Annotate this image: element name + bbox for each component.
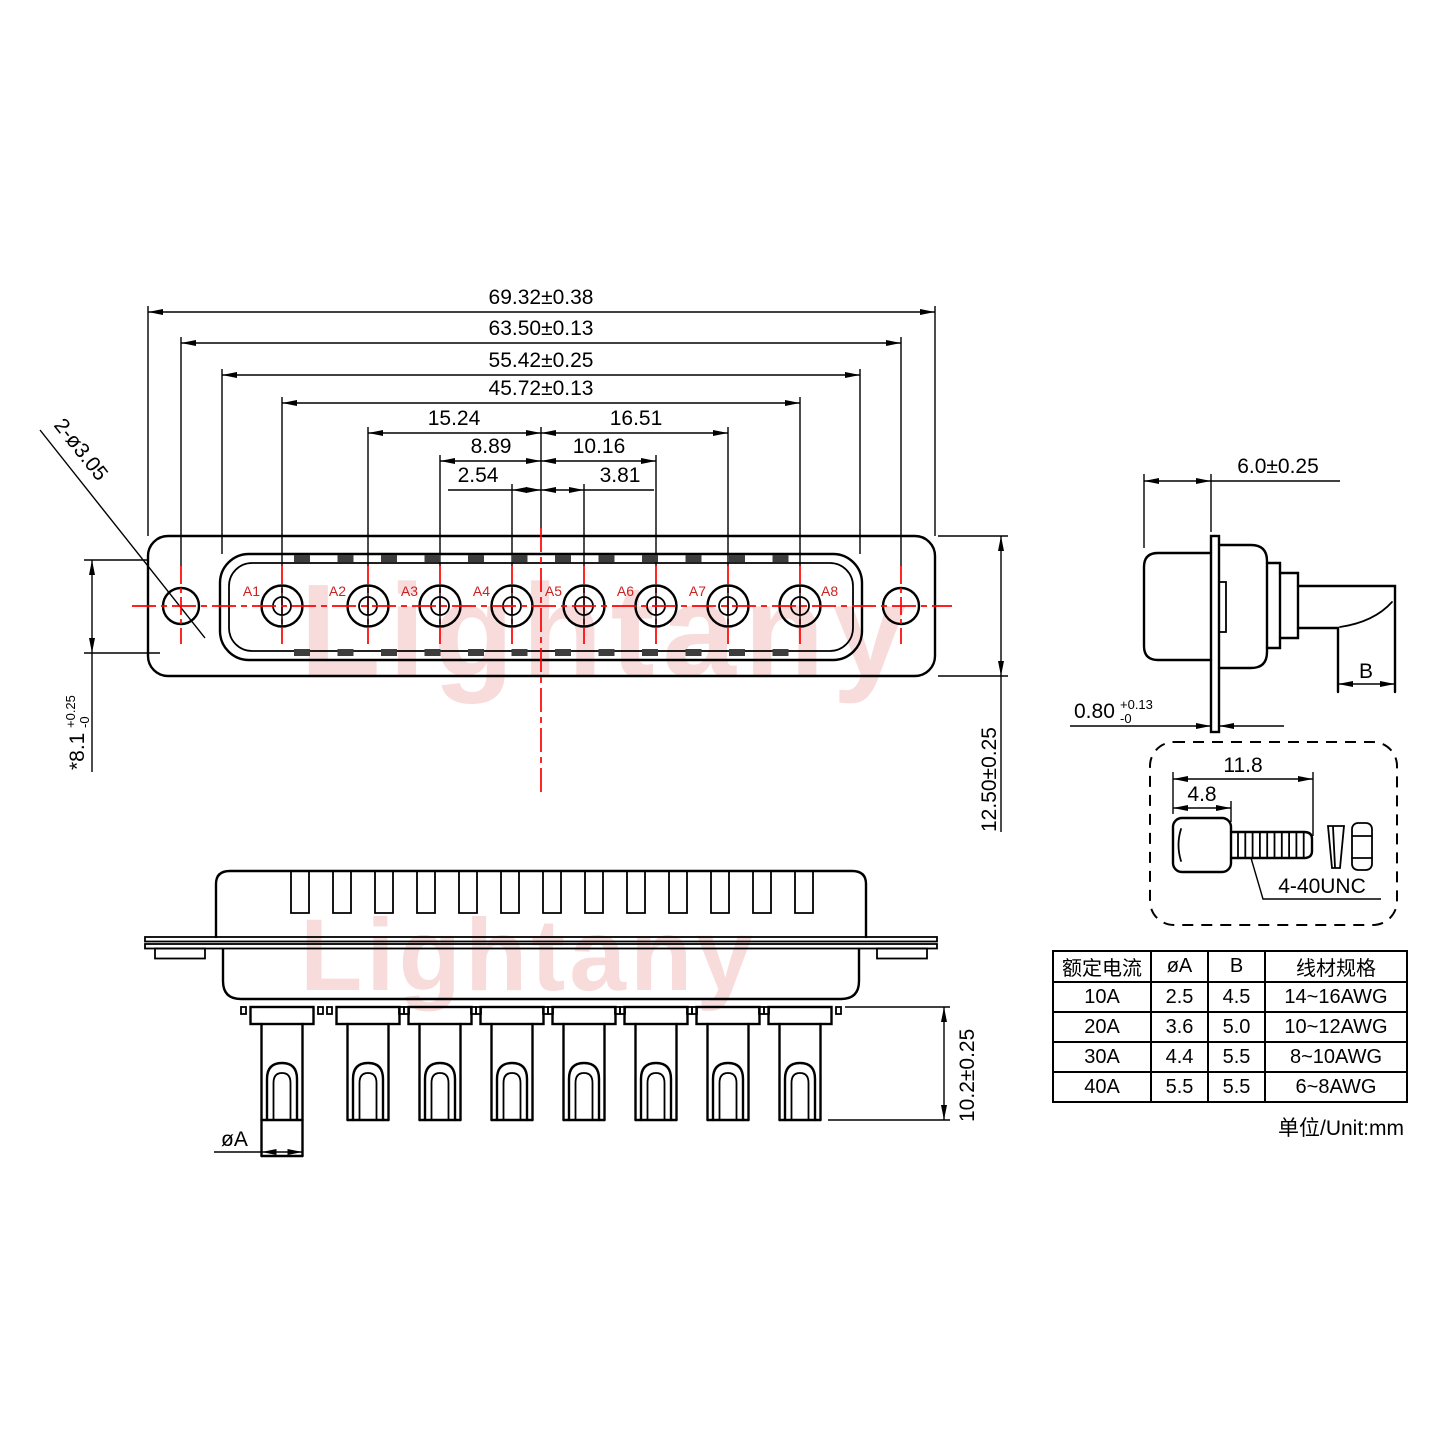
dim-center-a6: 10.16 xyxy=(573,435,626,458)
dim-flange-thickness: 0.80 xyxy=(1074,700,1115,723)
pin-label: A8 xyxy=(821,583,838,599)
thread-spec-group: 4-40UNC xyxy=(1251,858,1381,899)
dim-pin-diameter: øA xyxy=(221,1128,248,1151)
dim-front-depth: 6.0±0.25 xyxy=(1237,455,1319,478)
cell-current: 10A xyxy=(1053,982,1151,1012)
cell-current: 20A xyxy=(1053,1012,1151,1042)
side-profile xyxy=(1144,536,1395,732)
dim-center-a2: 15.24 xyxy=(428,407,481,430)
dim-terminal-width-group: B xyxy=(1338,660,1395,684)
dim-pin-length-group: 10.2±0.25 xyxy=(828,1007,979,1122)
pin-label: A1 xyxy=(243,583,260,599)
cell-wire: 10~12AWG xyxy=(1265,1012,1407,1042)
cell-wire: 6~8AWG xyxy=(1265,1072,1407,1102)
cell-wire: 14~16AWG xyxy=(1265,982,1407,1012)
cell-current: 40A xyxy=(1053,1072,1151,1102)
watermark-text-top: Lightany xyxy=(300,557,914,704)
dim-terminal-width: B xyxy=(1359,660,1373,683)
cell-dia: 5.5 xyxy=(1151,1072,1208,1102)
pin-label: A7 xyxy=(689,583,706,599)
spec-table: 额定电流 øA B 线材规格 10A 2.5 4.5 14~16AWG 20A … xyxy=(1052,950,1406,1142)
dim-pin-span: 45.72±0.13 xyxy=(489,377,594,400)
cell-dia: 2.5 xyxy=(1151,982,1208,1012)
table-row: 20A 3.6 5.0 10~12AWG xyxy=(1053,1012,1407,1042)
col-pin-diameter: øA xyxy=(1151,951,1208,982)
spec-header-row: 额定电流 øA B 线材规格 xyxy=(1053,951,1407,982)
cell-dia: 3.6 xyxy=(1151,1012,1208,1042)
pin-label: A6 xyxy=(617,583,634,599)
dim-shell-opening-tol-up: +0.25 xyxy=(63,695,78,728)
dim-flange-tol-up: +0.13 xyxy=(1120,697,1153,712)
dim-shell-width: 55.42±0.25 xyxy=(489,349,594,372)
watermark-text-bottom: Lightany xyxy=(300,898,757,1012)
dim-shell-opening-tol-dn: -0 xyxy=(77,716,92,728)
dim-center-a4: 2.54 xyxy=(458,464,499,487)
pin-label: A2 xyxy=(329,583,346,599)
dim-shell-opening: *8.1 xyxy=(66,733,89,770)
col-wire-gauge: 线材规格 xyxy=(1265,951,1407,982)
dim-shell-opening-group: *8.1 +0.25 -0 xyxy=(63,560,160,772)
dim-body-height-group: 12.50±0.25 xyxy=(938,536,1008,832)
screwlock-body xyxy=(1173,818,1312,872)
pin-label: A4 xyxy=(473,583,490,599)
dim-flange-tol-dn: -0 xyxy=(1120,711,1132,726)
dim-overall-width: 69.32±0.38 xyxy=(489,286,594,309)
thread-spec-label: 4-40UNC xyxy=(1278,875,1366,898)
unit-note: 单位/Unit:mm xyxy=(1052,1112,1406,1142)
cell-b: 5.5 xyxy=(1208,1042,1265,1072)
dim-center-a7: 16.51 xyxy=(610,407,663,430)
dim-screw-head: 4.8 xyxy=(1187,783,1216,806)
cell-dia: 4.4 xyxy=(1151,1042,1208,1072)
side-view: 6.0±0.25 B 0.80 +0.13 -0 xyxy=(1070,455,1395,732)
col-rated-current: 额定电流 xyxy=(1053,951,1151,982)
dim-pin-diameter-group: øA xyxy=(214,1128,303,1152)
drawing-canvas: Lightany Lightany xyxy=(0,0,1440,1440)
cell-b: 5.5 xyxy=(1208,1072,1265,1102)
cell-b: 5.0 xyxy=(1208,1012,1265,1042)
dim-screw-overall: 11.8 xyxy=(1223,754,1262,777)
col-b: B xyxy=(1208,951,1265,982)
pin-label: A3 xyxy=(401,583,418,599)
table-row: 10A 2.5 4.5 14~16AWG xyxy=(1053,982,1407,1012)
terminal-bend-line xyxy=(1340,602,1392,627)
dim-mount-hole-note: 2-ø3.05 xyxy=(49,414,112,485)
cell-current: 30A xyxy=(1053,1042,1151,1072)
dim-hole-span: 63.50±0.13 xyxy=(489,317,594,340)
screwlock-end-pieces xyxy=(1328,823,1372,870)
solder-pins xyxy=(241,1007,841,1156)
table-row: 40A 5.5 5.5 6~8AWG xyxy=(1053,1072,1407,1102)
pin-label: A5 xyxy=(545,583,562,599)
dim-center-a3: 8.89 xyxy=(471,435,512,458)
cell-b: 4.5 xyxy=(1208,982,1265,1012)
screw-detail: 11.8 4.8 4-40UNC xyxy=(1150,742,1397,925)
dim-flange-thickness-group: 0.80 +0.13 -0 xyxy=(1070,697,1284,726)
dim-pin-length: 10.2±0.25 xyxy=(956,1029,979,1122)
front-extension-lines xyxy=(148,306,935,566)
dim-body-height: 12.50±0.25 xyxy=(978,727,1001,832)
cell-wire: 8~10AWG xyxy=(1265,1042,1407,1072)
dim-screw-head-group: 4.8 xyxy=(1173,783,1231,822)
thread-lines xyxy=(1238,833,1304,857)
dim-center-a5: 3.81 xyxy=(600,464,641,487)
dim-front-depth-group: 6.0±0.25 xyxy=(1144,455,1340,548)
table-row: 30A 4.4 5.5 8~10AWG xyxy=(1053,1042,1407,1072)
